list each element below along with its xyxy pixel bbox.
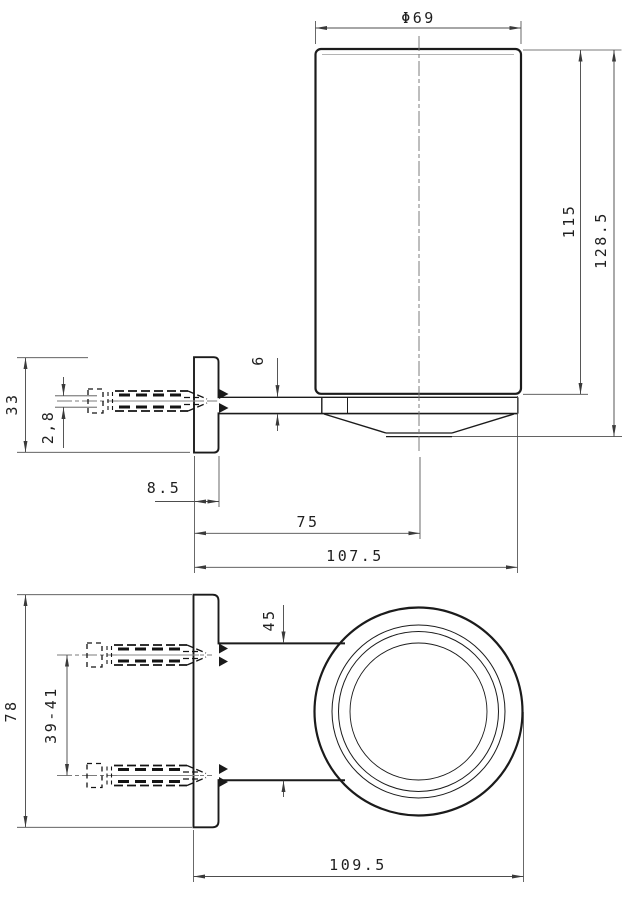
dim-label-hole-spacing: 39-41 <box>42 686 60 744</box>
dim-label-screw-diameter: 2,8 <box>39 410 57 445</box>
dim-diameter: Φ69 <box>316 9 522 44</box>
dim-arm-thickness: 6 <box>249 354 278 431</box>
cup-outer-circle <box>315 608 523 816</box>
dim-label-plate-height: 33 <box>3 392 21 415</box>
wall-anchor-upper <box>87 643 206 667</box>
side-view: Φ69 115 128.5 6 2,8 <box>3 9 622 573</box>
dim-overall-height: 128.5 <box>452 50 622 437</box>
cup-inner-wall-circle <box>339 632 499 792</box>
dim-label-wall-to-center: 75 <box>296 513 319 531</box>
cup-rim-circle <box>332 625 505 798</box>
ring-cone-right <box>452 414 514 433</box>
dim-wall-to-center: 75 <box>195 457 421 539</box>
dim-plate-thickness: 8.5 <box>147 456 219 573</box>
dim-label-diameter: Φ69 <box>401 9 436 27</box>
wall-anchor-side <box>88 389 207 413</box>
arm-mask-plan <box>217 644 307 779</box>
wall-plate-plan <box>194 595 219 828</box>
dim-hole-spacing: 39-41 <box>42 655 67 776</box>
arm-mask <box>217 398 317 412</box>
dim-plate-width: 78 <box>2 595 192 828</box>
dim-label-wall-to-edge: 107.5 <box>326 547 384 565</box>
dim-wall-to-edge: 107.5 <box>195 396 518 573</box>
drawing-page: Φ69 115 128.5 6 2,8 <box>0 0 638 900</box>
cup-inner-bottom-circle <box>350 643 487 780</box>
dim-label-arm-width: 45 <box>260 608 278 631</box>
plan-view: 78 39-41 45 109.5 <box>2 595 524 882</box>
cup-outline <box>316 49 522 394</box>
dim-label-arm-thickness: 6 <box>249 354 267 366</box>
dim-label-cup-height: 115 <box>560 204 578 239</box>
dim-label-overall-depth: 109.5 <box>329 856 387 874</box>
technical-drawing: Φ69 115 128.5 6 2,8 <box>0 0 638 900</box>
dim-plate-height: 33 <box>3 358 190 453</box>
dim-label-plate-width: 78 <box>2 699 20 722</box>
wall-anchor-lower <box>87 764 206 788</box>
dim-label-plate-thickness: 8.5 <box>147 479 182 497</box>
ring-cone-left <box>324 414 386 433</box>
dim-label-overall-height: 128.5 <box>592 211 610 269</box>
